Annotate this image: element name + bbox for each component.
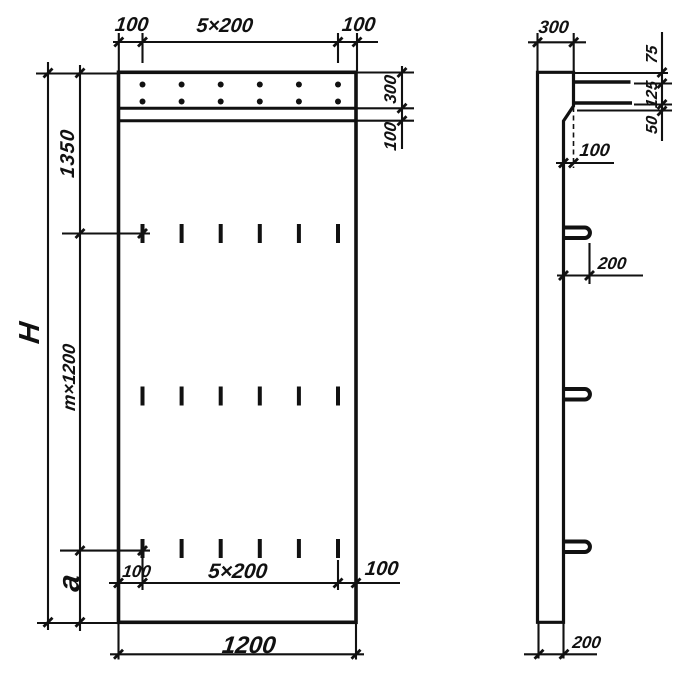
svg-text:5×200: 5×200 — [195, 15, 254, 37]
svg-text:200: 200 — [596, 254, 628, 273]
svg-text:300: 300 — [538, 17, 570, 37]
svg-text:125: 125 — [643, 79, 661, 109]
svg-text:200: 200 — [570, 633, 602, 652]
svg-text:100: 100 — [381, 120, 400, 151]
svg-text:75: 75 — [643, 43, 661, 64]
svg-text:100: 100 — [364, 558, 400, 580]
svg-text:5×200: 5×200 — [207, 560, 269, 583]
svg-text:100: 100 — [579, 140, 611, 160]
svg-text:m×1200: m×1200 — [59, 343, 79, 412]
svg-text:50: 50 — [643, 115, 661, 135]
svg-text:100: 100 — [121, 562, 152, 581]
svg-text:300: 300 — [381, 73, 400, 104]
svg-text:H: H — [14, 319, 46, 345]
svg-text:1350: 1350 — [57, 128, 79, 179]
svg-text:1200: 1200 — [221, 632, 278, 659]
svg-text:100: 100 — [341, 14, 377, 36]
svg-text:100: 100 — [114, 14, 150, 36]
